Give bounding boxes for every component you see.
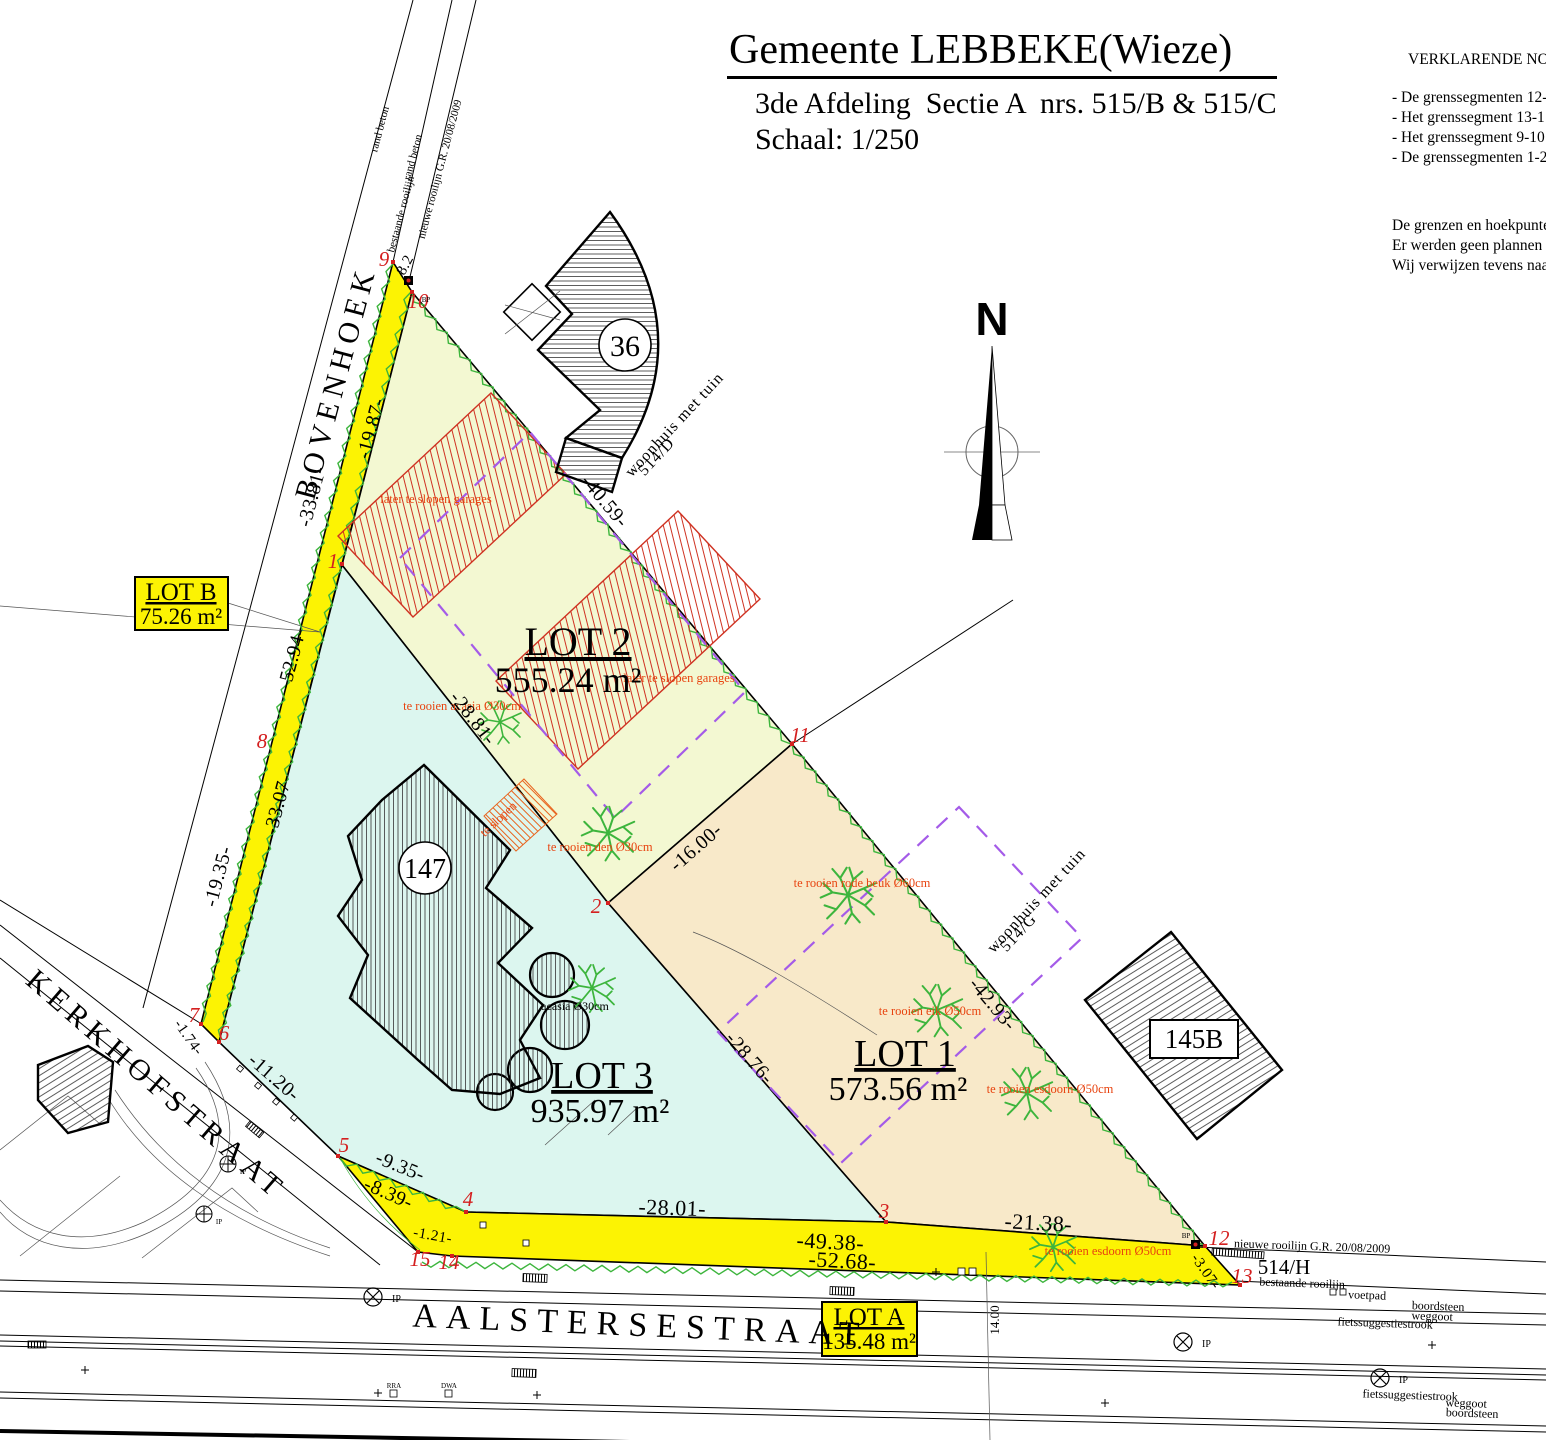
building-147-label: 147 (404, 854, 446, 885)
ip-label-small: IP (240, 1168, 246, 1176)
notes-paragraph-3: Wij verwijzen tevens naa (1392, 256, 1546, 276)
ip-symbol-2: IP (1174, 1333, 1211, 1351)
building-145b: 145B (1085, 932, 1282, 1139)
notes-bullet-4: - De grenssegmenten 1-2 (1392, 148, 1546, 168)
lot3-name: LOT 3 (551, 1055, 653, 1097)
dim-28-01: -28.01- (638, 1194, 706, 1221)
ip-symbol-1: IP (364, 1288, 401, 1306)
rra-label: RRA (387, 1382, 401, 1390)
ip-label: IP (1202, 1339, 1211, 1350)
lot2-name: LOT 2 (524, 619, 631, 664)
annotation-den: te rooien den Ø30cm (547, 840, 652, 854)
boordsteen-label-2: boordsteen (1446, 1405, 1499, 1421)
point-5: 5 (339, 1133, 350, 1157)
lot2-area: 555.24 m² (495, 660, 642, 700)
dwa-label: DWA (441, 1382, 457, 1390)
north-label: N (975, 293, 1008, 345)
plan-title: Gemeente LEBBEKE(Wieze) (727, 26, 1277, 79)
survey-point-2: IP (196, 1206, 222, 1226)
point-2: 2 (591, 894, 602, 918)
bestaande-rooilijn-top: bestaande rooilijn (385, 174, 417, 253)
plan-subtitle: 3de Afdeling Sectie A nrs. 515/B & 515/C (755, 87, 1277, 121)
notes-bullet-2: - Het grenssegment 13-1 (1392, 108, 1546, 128)
rand-beton-2: rand beton (401, 133, 425, 182)
notes-paragraph-2: Er werden geen plannen (1392, 236, 1546, 256)
bp-label-bottom: BP (1182, 1232, 1191, 1240)
plan-canvas: 36 147 145B later te slopen ga (0, 0, 1546, 1440)
dim-21-38: -21.38- (1004, 1208, 1073, 1237)
lot3-area: 935.97 m² (531, 1093, 670, 1130)
annotation-esdoorn-2: te rooien esdoorn Ø50cm (1045, 1244, 1172, 1258)
point-4: 4 (463, 1187, 474, 1211)
notes-bullet-1: - De grenssegmenten 12- (1392, 88, 1546, 108)
plan-drawing: 36 147 145B later te slopen ga (0, 0, 1546, 1440)
annotation-esdoorn-1: te rooien esdoorn Ø50cm (987, 1082, 1114, 1096)
voetpad-label: voetpad (1348, 1287, 1386, 1302)
dim-14-00: 14.00 (987, 1305, 1002, 1334)
point-1: 1 (328, 549, 339, 573)
fietssuggestiestrook-label-1: fietssuggestiestrook (1337, 1314, 1433, 1331)
point-8: 8 (257, 729, 268, 753)
explanatory-notes: VERKLARENDE NO - De grenssegmenten 12- -… (1392, 50, 1546, 276)
building-145b-label: 145B (1165, 1024, 1224, 1054)
north-arrow: N (944, 293, 1040, 540)
notes-heading: VERKLARENDE NO (1408, 50, 1546, 70)
dim-52-68: -52.68- (808, 1246, 877, 1275)
point-12: 12 (1209, 1226, 1231, 1250)
annotation-garages-1: later te slopen garages (380, 492, 492, 506)
rand-beton-1: rand beton (368, 105, 392, 154)
lot-b-name: LOT B (145, 579, 216, 606)
point-3: 3 (878, 1199, 890, 1223)
lot1-area: 573.56 m² (829, 1071, 968, 1108)
nieuwe-rooilijn-top: nieuwe rooilijn G.R. 20/08/2009 (416, 98, 465, 240)
bp-label-top: BP (422, 296, 431, 304)
plan-scale: Schaal: 1/250 (755, 123, 1277, 157)
lot-b-label: LOT B 75.26 m² (135, 577, 228, 630)
lot1-name: LOT 1 (854, 1033, 956, 1075)
annotation-rode-beuk: te rooien rode beuk Ø60cm (794, 876, 931, 890)
annotation-eik: te rooien eik Ø50cm (879, 1004, 982, 1018)
annotation-acasia-black: acasia Ø30cm (541, 999, 609, 1013)
notes-bullet-3: - Het grenssegment 9-10 (1392, 128, 1546, 148)
notes-paragraph-1: De grenzen en hoekpunte (1392, 216, 1546, 236)
title-block: Gemeente LEBBEKE(Wieze) 3de Afdeling Sec… (727, 26, 1277, 157)
fietssuggestiestrook-label-2: fietssuggestiestrook (1362, 1386, 1458, 1403)
ip-label: IP (1399, 1375, 1408, 1386)
ip-label: IP (392, 1294, 401, 1305)
point-14: 14 (439, 1250, 461, 1274)
dim-19-35: -19.35- (200, 844, 237, 909)
lot-polygons (201, 262, 1240, 1285)
lot-b-area: 75.26 m² (140, 604, 222, 629)
ip-label-small: IP (216, 1218, 222, 1226)
building-36-label: 36 (610, 330, 640, 363)
point-7: 7 (189, 1003, 201, 1027)
